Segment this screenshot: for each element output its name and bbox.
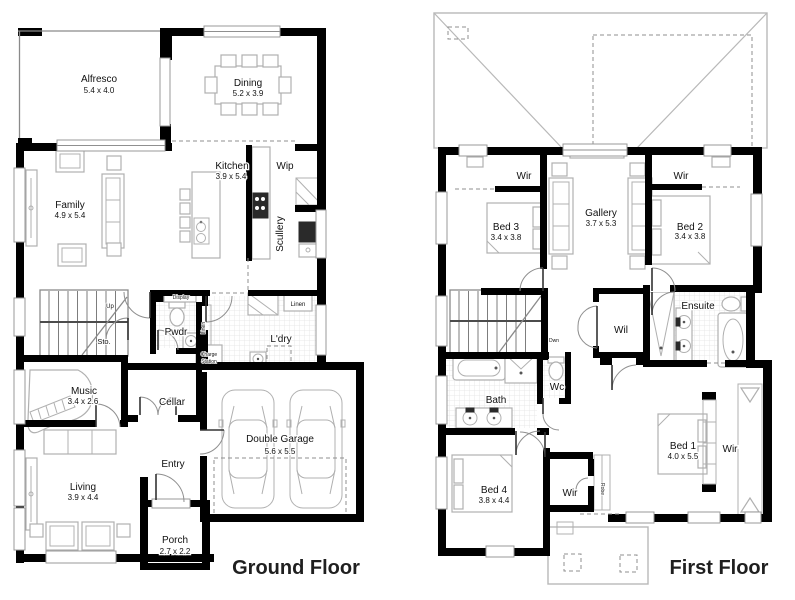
powder-label: Pwdr <box>165 327 188 338</box>
alfresco-label: Alfresco <box>81 74 118 85</box>
kitchen-label: Kitchen <box>215 161 248 172</box>
robe-label: Robe <box>599 483 605 495</box>
first-floor-plan: Wir Bed 3 3.4 x 3.8 Gallery 3.7 x 5.3 Wi… <box>434 13 772 584</box>
wir-bed2-label: Wir <box>674 171 690 182</box>
first-floor-title: First Floor <box>670 557 769 579</box>
storage-label: Sto. <box>97 337 110 346</box>
roof-outline-top <box>434 13 767 148</box>
cellar-label: Cellar <box>159 397 186 408</box>
bed2-dims: 3.4 x 3.8 <box>675 232 706 241</box>
charge-station-label-1: Charge <box>201 352 218 358</box>
living-dims: 3.9 x 4.4 <box>68 493 99 502</box>
gallery-dims: 3.7 x 5.3 <box>586 219 617 228</box>
bed4-dims: 3.8 x 4.4 <box>479 496 510 505</box>
bath-label: Bath <box>486 395 507 406</box>
bed1-dims: 4.0 x 5.5 <box>668 452 699 461</box>
stairs-up-label: Up <box>106 304 114 310</box>
wc-label: Wc <box>550 382 564 393</box>
linen-closet-label: Linen <box>201 322 207 334</box>
garage-dims: 5.6 x 5.5 <box>265 447 296 456</box>
charge-station-label-2: Station <box>201 359 217 365</box>
display-label: Display <box>173 295 190 301</box>
wir-bed1-label: Wir <box>723 444 739 455</box>
porch-label: Porch <box>162 535 188 546</box>
staircase-first <box>450 290 543 356</box>
music-label: Music <box>71 386 97 397</box>
gallery-label: Gallery <box>585 208 617 219</box>
living-label: Living <box>70 482 96 493</box>
entry-label: Entry <box>161 459 184 470</box>
stairs-dwn-label: Dwn <box>549 338 559 344</box>
bed4-label: Bed 4 <box>481 485 508 496</box>
ground-floor-title: Ground Floor <box>232 557 360 579</box>
family-label: Family <box>55 200 84 211</box>
wir-bed4-label: Wir <box>563 488 579 499</box>
floor-plan-page: Alfresco 5.4 x 4.0 Dining 5.2 x 3.9 Kitc… <box>0 0 795 600</box>
kitchen-dims: 3.9 x 5.4 <box>216 172 247 181</box>
alfresco-dims: 5.4 x 4.0 <box>84 86 115 95</box>
ground-floor-plan: Alfresco 5.4 x 4.0 Dining 5.2 x 3.9 Kitc… <box>14 26 364 579</box>
roof-outline-bottom <box>548 527 648 584</box>
bed2-furniture <box>650 157 730 264</box>
porch-dims: 2.7 x 2.2 <box>160 547 191 556</box>
bed1-label: Bed 1 <box>670 441 697 452</box>
floor-plan-canvas: Alfresco 5.4 x 4.0 Dining 5.2 x 3.9 Kitc… <box>0 0 795 600</box>
wir-bed3-label: Wir <box>517 171 533 182</box>
family-dims: 4.9 x 5.4 <box>55 211 86 220</box>
linen-ldry-label: Linen <box>291 302 306 308</box>
wc-fixtures <box>548 357 564 380</box>
laundry-label: L'dry <box>270 334 291 345</box>
garage-label: Double Garage <box>246 434 314 445</box>
dining-dims: 5.2 x 3.9 <box>233 89 264 98</box>
wip-label: Wip <box>276 161 294 172</box>
ensuite-label: Ensuite <box>681 301 715 312</box>
scullery-label: Scullery <box>275 216 286 252</box>
bed4-furniture <box>452 455 573 534</box>
bed3-dims: 3.4 x 3.8 <box>491 233 522 242</box>
wil-label: Wil <box>614 325 628 336</box>
music-dims: 3.4 x 2.6 <box>68 397 99 406</box>
bed3-label: Bed 3 <box>493 222 520 233</box>
dining-label: Dining <box>234 78 262 89</box>
